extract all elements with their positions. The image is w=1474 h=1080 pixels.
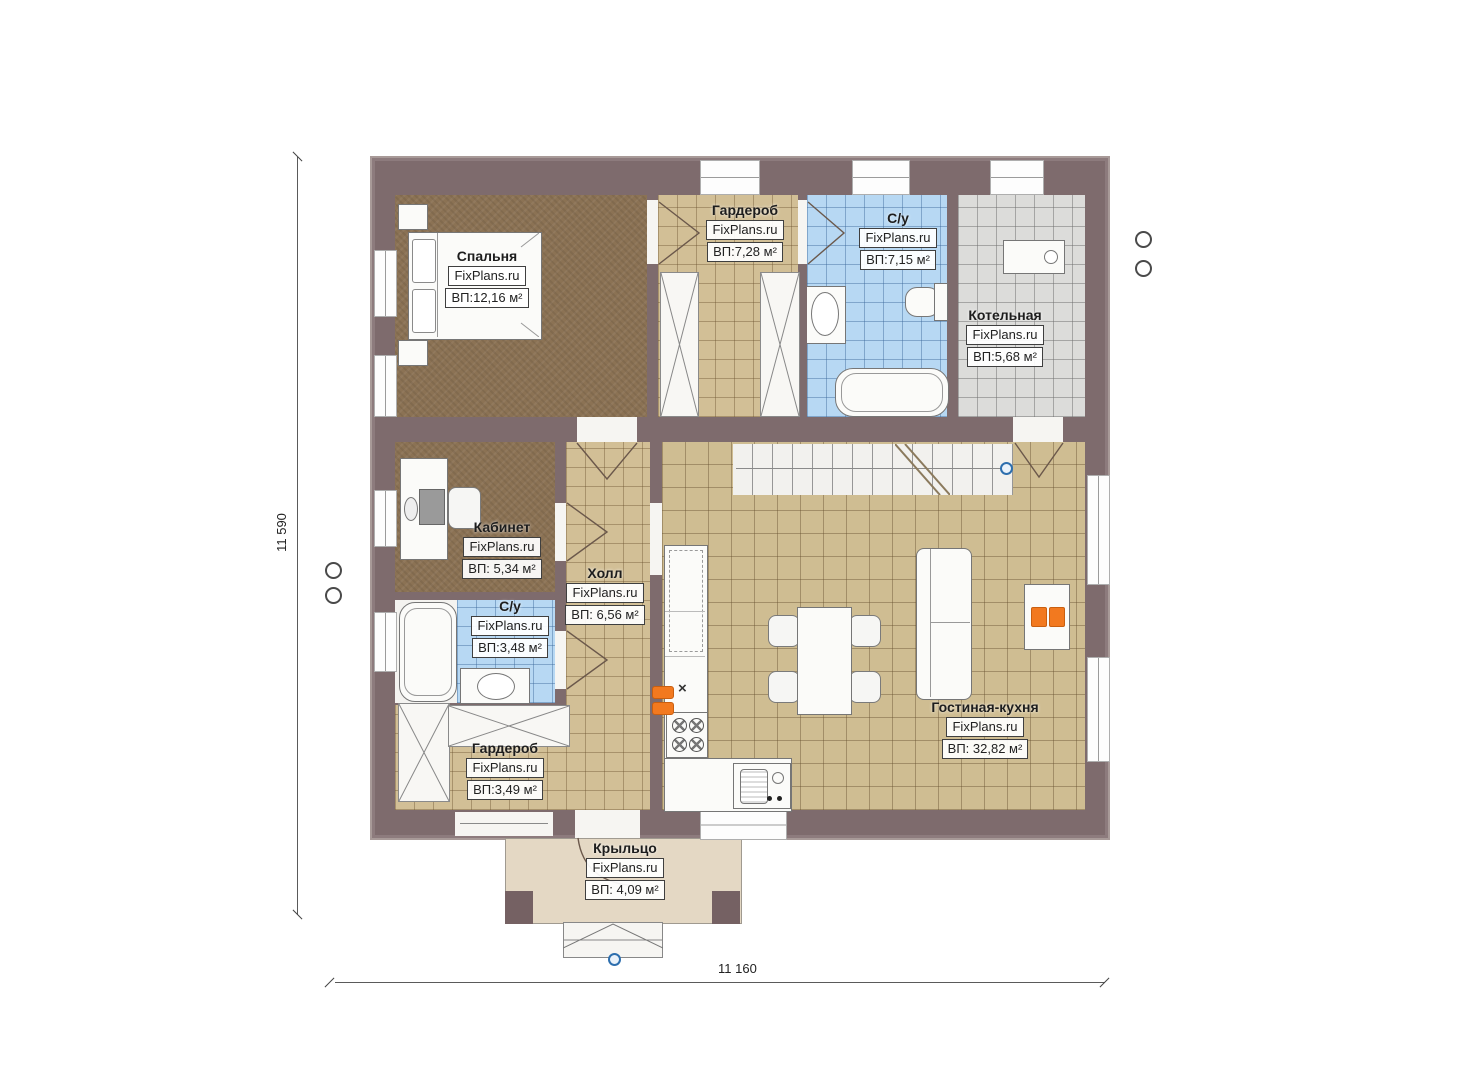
dining-chair	[849, 671, 881, 703]
faucet-dot	[777, 796, 782, 801]
stove	[666, 712, 708, 758]
dining-chair	[768, 671, 800, 703]
area-box: ВП: 32,82 м²	[942, 739, 1029, 759]
burner-icon	[672, 718, 687, 733]
door-opening-porch	[575, 810, 640, 838]
desk-computer	[419, 489, 445, 525]
area-box: ВП: 4,09 м²	[585, 880, 664, 900]
closet-top-right	[760, 272, 800, 417]
window-left-4	[374, 612, 397, 672]
dimension-line-vertical	[297, 157, 298, 915]
window-bottom-kitchen	[700, 810, 787, 840]
counter-divider	[665, 656, 705, 657]
window-right-1	[1087, 475, 1110, 585]
area-box: ВП:5,68 м²	[967, 347, 1043, 367]
sofa-cushion-line	[930, 622, 970, 623]
washbasin-small	[460, 668, 530, 704]
stair-break-line	[895, 444, 950, 495]
room-name: Гардероб	[472, 740, 538, 756]
window-top-3	[990, 160, 1044, 195]
area-box: ВП:3,48 м²	[472, 638, 548, 658]
switch-panel-icon	[652, 686, 674, 699]
room-label-wardrobe-bottom: Гардероб FixPlans.ru ВП:3,49 м²	[450, 740, 560, 800]
utility-riser-icon	[1135, 260, 1152, 277]
level-marker-icon	[608, 953, 621, 966]
brand-box: FixPlans.ru	[448, 266, 525, 286]
room-floor-boiler	[958, 195, 1085, 417]
sink-cross-mark: ×	[678, 680, 694, 696]
window-top-2	[852, 160, 910, 195]
closet-bottom-vertical	[398, 703, 450, 802]
brand-box: FixPlans.ru	[471, 616, 548, 636]
fire-glyph-icon	[1049, 607, 1065, 627]
burner-icon	[689, 718, 704, 733]
brand-box: FixPlans.ru	[859, 228, 936, 248]
room-name: Холл	[587, 565, 622, 581]
room-label-wardrobe-top: Гардероб FixPlans.ru ВП:7,28 м²	[690, 202, 800, 262]
brand-box: FixPlans.ru	[946, 717, 1023, 737]
door-opening-boiler	[1013, 417, 1063, 442]
sofa-backrest-line	[930, 549, 931, 697]
faucet-dot	[767, 796, 772, 801]
room-name: С/у	[887, 210, 909, 226]
nightstand-1	[398, 204, 428, 230]
room-label-bathroom-top: С/у FixPlans.ru ВП:7,15 м²	[843, 210, 953, 270]
brand-box: FixPlans.ru	[706, 220, 783, 240]
area-box: ВП:3,49 м²	[467, 780, 543, 800]
dining-table	[797, 607, 852, 715]
room-name: Гостиная-кухня	[931, 699, 1038, 715]
room-name: Крыльцо	[593, 840, 657, 856]
sink-drain-icon	[772, 772, 784, 784]
utility-riser-icon	[1135, 231, 1152, 248]
area-box: ВП: 5,34 м²	[462, 559, 541, 579]
dim-tick	[325, 978, 335, 988]
fireplace-stove	[1024, 584, 1070, 650]
room-label-hall: Холл FixPlans.ru ВП: 6,56 м²	[550, 565, 660, 625]
sink-drainboard	[740, 769, 768, 804]
dimension-value-horizontal: 11 160	[718, 961, 757, 976]
sofa	[916, 548, 972, 700]
washbasin-top	[807, 286, 846, 344]
room-label-office: Кабинет FixPlans.ru ВП: 5,34 м²	[447, 519, 557, 579]
dimension-value-vertical: 11 590	[274, 513, 289, 552]
utility-riser-icon	[325, 562, 342, 579]
door-opening-bedroom	[577, 417, 637, 442]
window-left-3	[374, 490, 397, 547]
porch-pillar-left	[505, 891, 533, 924]
burner-icon	[672, 737, 687, 752]
door-swing-bathroom-small-icon	[567, 631, 608, 689]
door-opening-wardrobe-top	[647, 200, 658, 264]
room-label-boiler: Котельная FixPlans.ru ВП:5,68 м²	[950, 307, 1060, 367]
room-label-porch: Крыльцо FixPlans.ru ВП: 4,09 м²	[565, 840, 685, 900]
window-left-1	[374, 250, 397, 317]
stair-arrow-end-icon	[1000, 462, 1013, 475]
room-label-living-kitchen: Гостиная-кухня FixPlans.ru ВП: 32,82 м²	[905, 699, 1065, 759]
dimension-line-horizontal	[335, 982, 1105, 983]
door-swing-office-icon	[567, 503, 608, 561]
brand-box: FixPlans.ru	[586, 858, 663, 878]
brand-box: FixPlans.ru	[463, 537, 540, 557]
boiler-unit	[1003, 240, 1065, 274]
bathtub-inner	[841, 373, 943, 412]
window-left-2	[374, 355, 397, 417]
dining-chair	[849, 615, 881, 647]
porch-pillar-right	[712, 891, 740, 924]
nightstand-2	[398, 340, 428, 366]
bathtub-top	[835, 368, 949, 417]
opening-guide-line	[460, 823, 548, 824]
window-top-1	[700, 160, 760, 195]
burner-icon	[689, 737, 704, 752]
area-box: ВП:7,28 м²	[707, 242, 783, 262]
switch-panel-icon	[652, 702, 674, 715]
room-name: Гардероб	[712, 202, 778, 218]
door-swing-bathroom-top-icon	[808, 202, 845, 264]
counter-divider	[665, 611, 705, 612]
floor-plan-canvas: × Спальня FixPlans.ru ВП:12,16 м² Гардер…	[0, 0, 1474, 1080]
stair-direction-line	[736, 468, 1006, 469]
kitchen-sink	[733, 763, 791, 809]
brand-box: FixPlans.ru	[966, 325, 1043, 345]
room-name: Кабинет	[474, 519, 531, 535]
utility-riser-icon	[325, 587, 342, 604]
closet-top-left	[660, 272, 699, 417]
door-swing-boiler-icon	[1015, 443, 1063, 478]
desk-lamp-icon	[404, 497, 418, 521]
door-swing-bedroom-icon	[577, 443, 637, 480]
desk	[400, 458, 448, 560]
washbasin-bowl	[811, 292, 839, 336]
dining-chair	[768, 615, 800, 647]
washbasin-bowl	[477, 673, 515, 700]
bathtub-small	[399, 602, 457, 702]
room-label-bedroom: Спальня FixPlans.ru ВП:12,16 м²	[432, 248, 542, 308]
room-name: С/у	[499, 598, 521, 614]
room-name: Котельная	[968, 307, 1041, 323]
room-name: Спальня	[457, 248, 517, 264]
bathtub-inner	[404, 608, 452, 696]
area-box: ВП: 6,56 м²	[565, 605, 644, 625]
staircase	[733, 444, 1013, 495]
room-floor-hall	[566, 442, 650, 810]
area-box: ВП:7,15 м²	[860, 250, 936, 270]
fire-glyph-icon	[1031, 607, 1047, 627]
toilet-tank	[934, 283, 948, 321]
upper-cabinet-dashed	[669, 550, 703, 652]
area-box: ВП:12,16 м²	[445, 288, 528, 308]
room-label-bathroom-small: С/у FixPlans.ru ВП:3,48 м²	[455, 598, 565, 658]
brand-box: FixPlans.ru	[466, 758, 543, 778]
opening-bottom-left	[455, 812, 553, 836]
boiler-dial-icon	[1044, 250, 1058, 264]
brand-box: FixPlans.ru	[566, 583, 643, 603]
window-right-2	[1087, 657, 1110, 762]
